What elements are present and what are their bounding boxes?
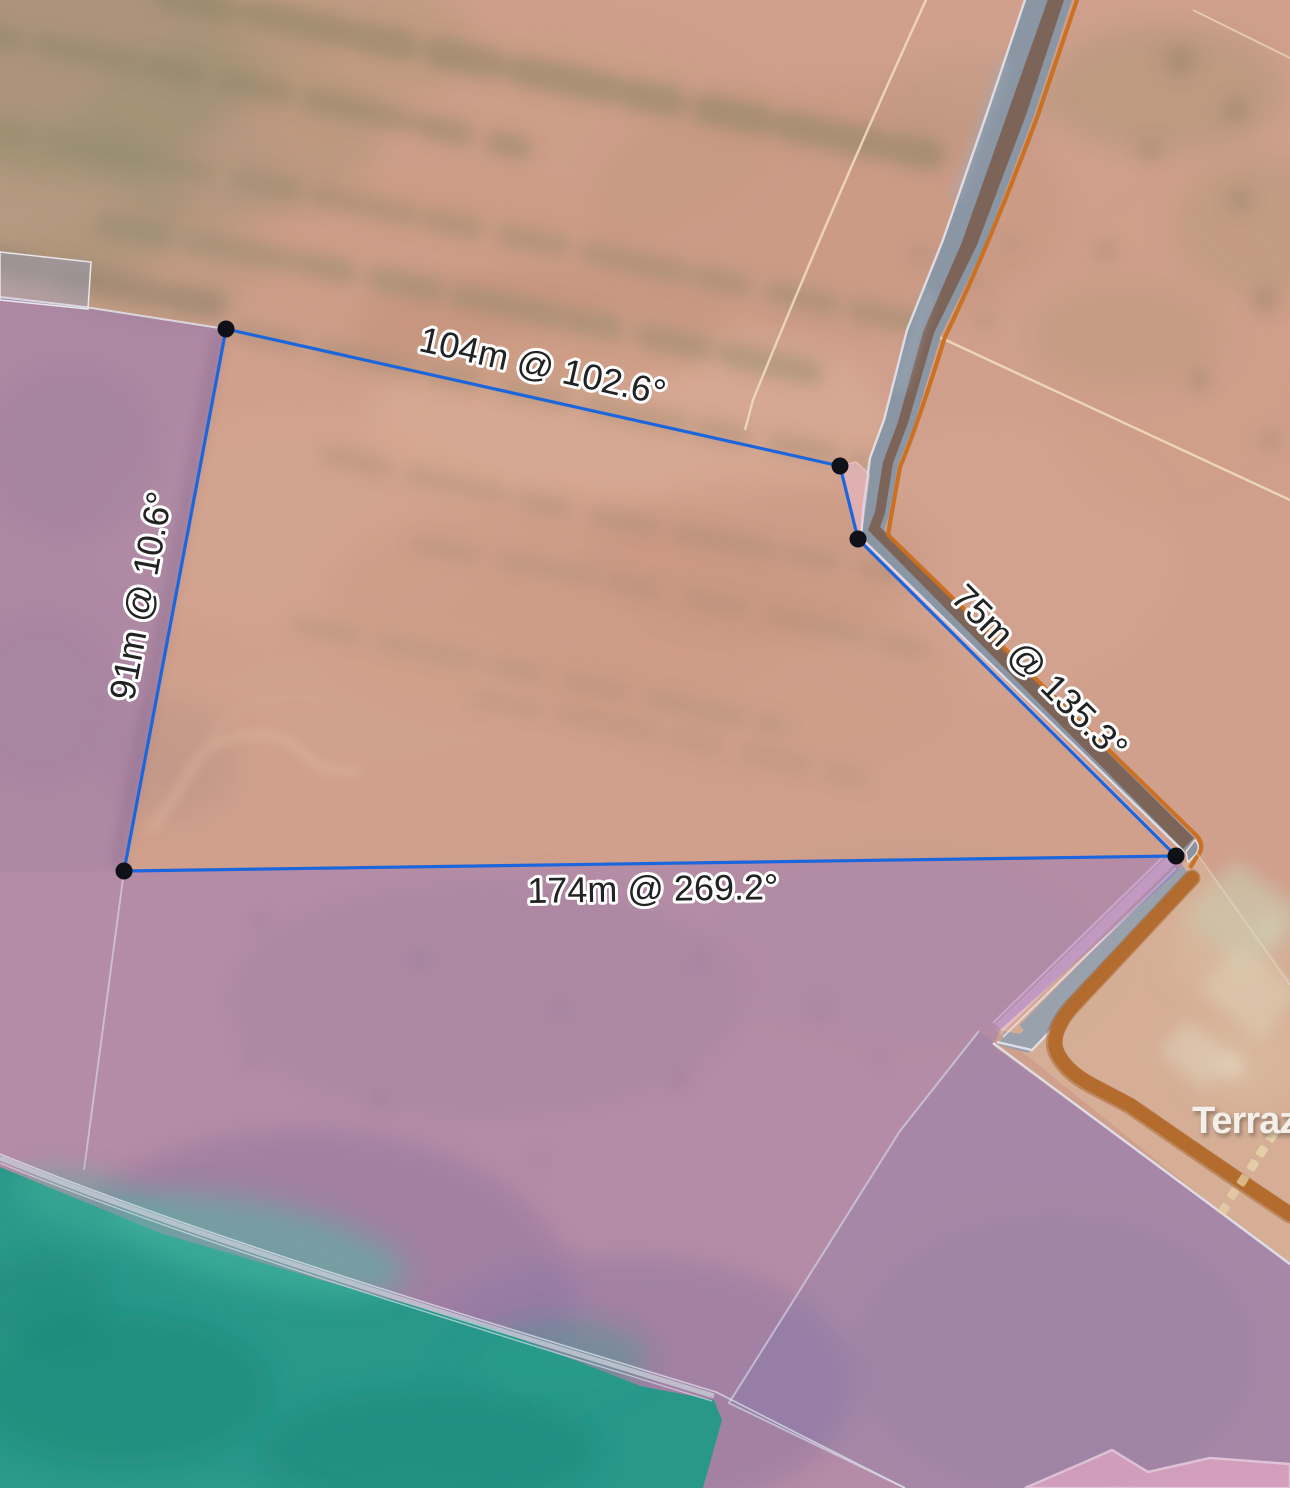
svg-text:174m @ 269.2°: 174m @ 269.2°	[527, 866, 779, 911]
svg-text:Terraza: Terraza	[1192, 1100, 1290, 1142]
